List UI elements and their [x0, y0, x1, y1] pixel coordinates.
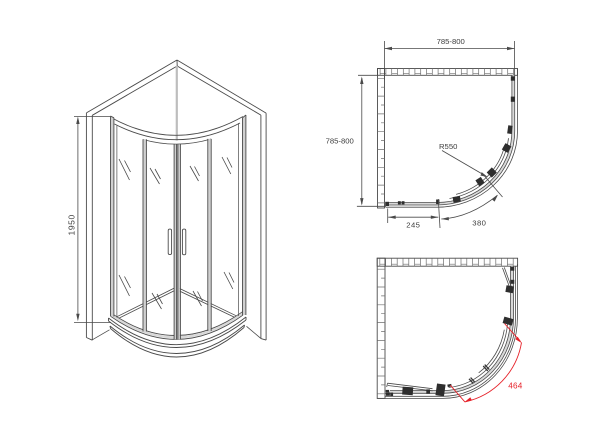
svg-text:785-800: 785-800: [326, 137, 354, 146]
svg-text:245: 245: [406, 221, 420, 230]
svg-text:R550: R550: [439, 142, 457, 151]
svg-text:785-800: 785-800: [437, 37, 465, 46]
svg-text:464: 464: [508, 381, 523, 390]
svg-text:380: 380: [472, 219, 486, 228]
svg-text:1950: 1950: [67, 214, 77, 235]
